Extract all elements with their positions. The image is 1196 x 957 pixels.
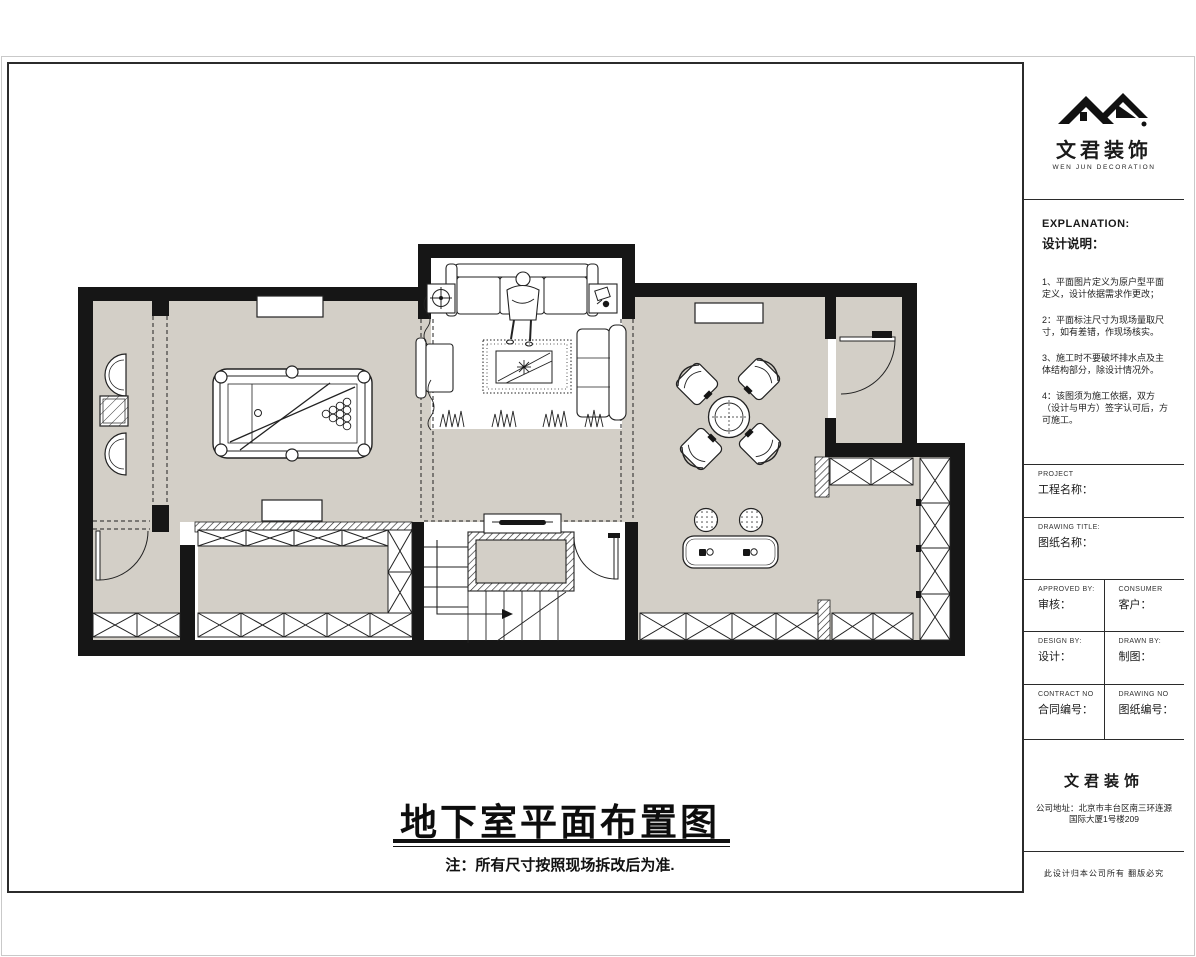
title-rule-thin [393,846,730,847]
chaise-chair [577,325,626,420]
plan-note: 注：所有尺寸按照现场拆改后为准. [330,854,790,875]
cabinet-box [388,572,412,613]
drawing-no-field: DRAWING NO 图纸编号： [1104,685,1185,739]
project-label-zh: 工程名称： [1038,481,1184,497]
cabinet-box [370,613,412,637]
cabinet-box [198,613,241,637]
pool-table [213,366,372,461]
contract-drawingno-row: CONTRACT NO 合同编号： DRAWING NO 图纸编号： [1024,685,1184,740]
consumer-label-en: CONSUMER [1119,586,1185,593]
consumer-label-zh: 客户： [1119,596,1185,612]
cabinet-box [832,613,873,640]
approved-by-field: APPROVED BY: 审核： [1024,580,1104,631]
copyright-section: 此设计归本公司所有 翻版必究 [1024,852,1184,891]
design-drawn-row: DESIGN BY: 设计： DRAWN BY: 制图： [1024,632,1184,685]
title-block-sidebar: 文君装饰 WEN JUN DECORATION EXPLANATION: 设计说… [1022,62,1184,893]
cabinet-box [246,530,294,546]
cabinet-box [93,613,137,637]
cabinet-box [342,530,388,546]
contract-no-label-en: CONTRACT NO [1038,691,1104,698]
design-label-zh: 设计： [1038,648,1104,664]
design-note: 3、施工时不要破坏排水点及主体结构部分，除设计情况外。 [1042,352,1172,376]
cabinet-box [871,458,913,485]
title-rule-thick [393,839,730,843]
company-logo-subtitle: WEN JUN DECORATION [1024,164,1184,171]
cabinet-box [640,613,686,640]
drawing-no-label-en: DRAWING NO [1119,691,1185,698]
company-info-section: 文君装饰 公司地址：北京市丰台区南三环连源 国际大厦1号楼209 [1024,740,1184,852]
design-note: 1、平面图片定义为原户型平面定义，设计依据需求作更改； [1042,276,1172,300]
design-label-en: DESIGN BY: [1038,638,1104,645]
drawing-title-field: DRAWING TITLE: 图纸名称： [1024,518,1184,580]
copyright-text: 此设计归本公司所有 翻版必究 [1024,868,1184,879]
drawing-title-label-en: DRAWING TITLE: [1038,524,1184,531]
cabinet-box [920,458,950,503]
approved-consumer-row: APPROVED BY: 审核： CONSUMER 客户： [1024,580,1184,632]
cabinet-box [241,613,284,637]
explanation-section: EXPLANATION: 设计说明： 1、平面图片定义为原户型平面定义，设计依据… [1024,200,1184,465]
hatched-side-table [100,396,128,426]
bar-stool [695,509,718,532]
side-table-right [589,284,617,313]
cabinet-box [830,458,871,485]
design-note: 2：平面标注尺寸为现场量取尺寸，如有差错，作现场核实。 [1042,314,1172,338]
logo-section: 文君装饰 WEN JUN DECORATION [1024,62,1184,200]
contract-no-label-zh: 合同编号： [1038,701,1104,717]
drawn-by-field: DRAWN BY: 制图： [1104,632,1185,684]
design-note: 4：该图须为施工依据，双方（设计与甲方）签字认可后，方可施工。 [1042,390,1172,426]
contract-no-field: CONTRACT NO 合同编号： [1024,685,1104,739]
design-notes: 1、平面图片定义为原户型平面定义，设计依据需求作更改； 2：平面标注尺寸为现场量… [1042,276,1172,426]
consumer-field: CONSUMER 客户： [1104,580,1185,631]
cabinet-box [284,613,327,637]
company-address: 公司地址：北京市丰台区南三环连源 国际大厦1号楼209 [1024,803,1184,825]
cabinet-box [873,613,913,640]
cabinet-box [327,613,370,637]
company-address-line2: 国际大厦1号楼209 [1024,814,1184,825]
cabinet-box [137,613,180,637]
cabinet-box [732,613,776,640]
approved-label-zh: 审核： [1038,596,1104,612]
cabinet-box [198,530,246,546]
drawn-label-zh: 制图： [1119,648,1185,664]
project-label-en: PROJECT [1038,471,1184,478]
bar-counter [683,536,778,568]
page-title: 地下室平面布置图 [330,792,790,846]
table-plant [517,360,531,374]
cue-ball [255,410,262,417]
explanation-label-en: EXPLANATION: [1042,218,1172,230]
drawing-no-label-zh: 图纸编号： [1119,701,1185,717]
armchair-left [416,338,453,398]
cabinet-box [776,613,818,640]
company-address-line1: 公司地址：北京市丰台区南三环连源 [1024,803,1184,814]
company-name: 文君装饰 [1024,770,1184,791]
cabinet-box [920,503,950,548]
drawing-title-label-zh: 图纸名称： [1038,534,1184,550]
project-name-field: PROJECT 工程名称： [1024,465,1184,518]
design-by-field: DESIGN BY: 设计： [1024,632,1104,684]
explanation-label-zh: 设计说明： [1042,233,1172,252]
bar-stool [740,509,763,532]
cabinet-box [920,548,950,594]
company-logo-icon [1056,84,1152,136]
cabinet-box [920,594,950,640]
drawn-label-en: DRAWN BY: [1119,638,1185,645]
cabinet-box [686,613,732,640]
cabinet-box [388,530,412,572]
stair-shaft [468,532,574,591]
company-logo-name: 文君装饰 [1024,134,1184,163]
cabinet-box [294,530,342,546]
floor-plan [0,0,1020,760]
approved-label-en: APPROVED BY: [1038,586,1104,593]
console-cabinet [484,514,561,533]
coffee-table [496,351,552,383]
side-table-left [427,284,455,313]
